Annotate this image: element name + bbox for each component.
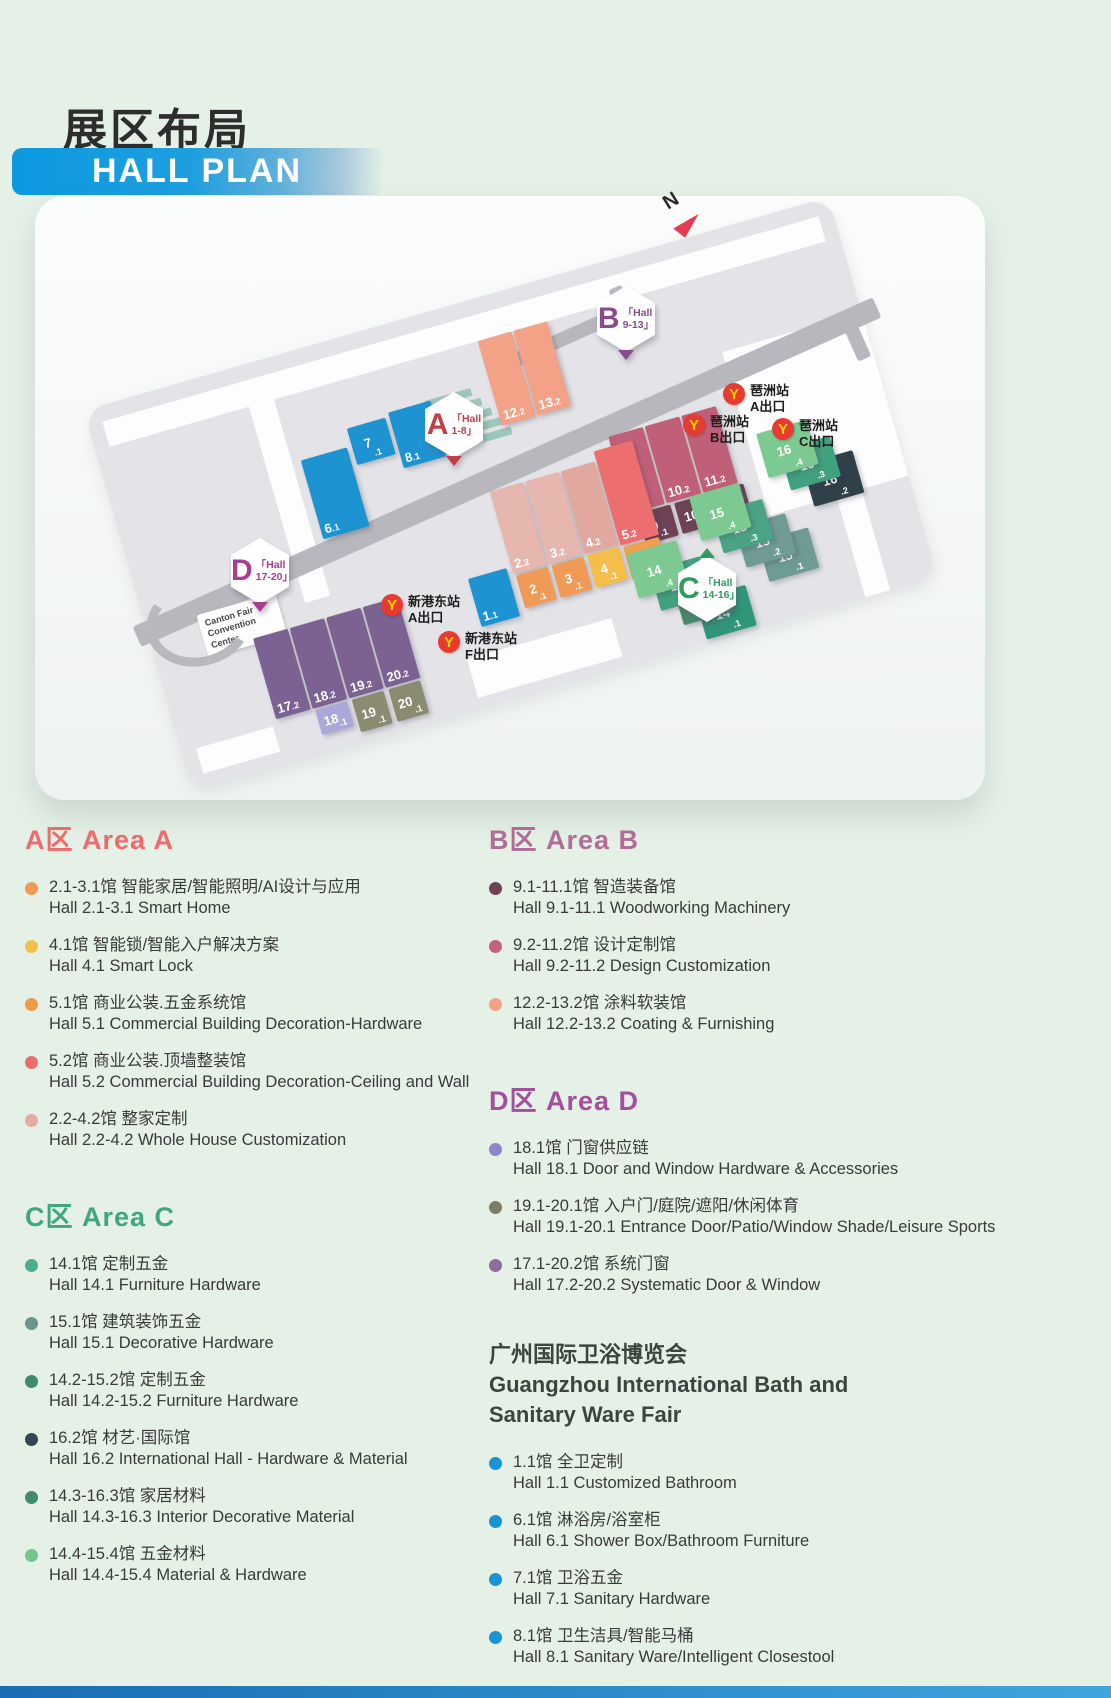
legend-item-cn: 14.1馆 定制五金 bbox=[49, 1254, 261, 1275]
legend-item-en: Hall 16.2 International Hall - Hardware … bbox=[49, 1449, 408, 1470]
legend-item-cn: 14.4-15.4馆 五金材料 bbox=[49, 1544, 307, 1565]
station-name: 新港东站 bbox=[465, 631, 517, 647]
hall-block-3.1: 3.1 bbox=[551, 556, 592, 598]
map-ground: Canton FairConventionCenter 12.213.29.21… bbox=[84, 197, 938, 790]
legend-item-en: Hall 15.1 Decorative Hardware bbox=[49, 1333, 274, 1354]
area-hexagon: D 「Hall 17-20」 bbox=[231, 538, 289, 604]
legend-item-area-c-6: 14.4-15.4馆 五金材料 Hall 14.4-15.4 Material … bbox=[25, 1544, 485, 1586]
bath-fair-title-cn: 广州国际卫浴博览会 bbox=[489, 1340, 1104, 1370]
area-pointer-icon bbox=[446, 456, 462, 466]
legend-item-en: Hall 8.1 Sanitary Ware/Intelligent Close… bbox=[513, 1647, 834, 1668]
legend-section-title: C区 Area C bbox=[25, 1195, 485, 1234]
area-hall-line1: 「Hall bbox=[256, 559, 289, 571]
area-hexagon: C 「Hall 14-16」 bbox=[678, 556, 736, 622]
legend-section-area-c: C区 Area C 14.1馆 定制五金 Hall 14.1 Furniture… bbox=[25, 1195, 485, 1586]
area-hexagon: A 「Hall 1-8」 bbox=[425, 392, 483, 458]
legend-item-area-c-5: 14.3-16.3馆 家居材料 Hall 14.3-16.3 Interior … bbox=[25, 1486, 485, 1528]
legend-left-column: A区 Area A 2.1-3.1馆 智能家居/智能照明/AI设计与应用 Hal… bbox=[25, 818, 485, 1630]
bath-fair-title: 广州国际卫浴博览会Guangzhou International Bath an… bbox=[489, 1340, 1104, 1430]
area-letter: A bbox=[427, 410, 449, 440]
legend-item-cn: 15.1馆 建筑装饰五金 bbox=[49, 1312, 274, 1333]
legend-dot-icon bbox=[489, 1515, 502, 1528]
compass: N bbox=[664, 190, 695, 236]
metro-logo-icon: Y bbox=[723, 383, 745, 405]
legend-item-cn: 6.1馆 淋浴房/浴室柜 bbox=[513, 1510, 809, 1531]
legend-dot-icon bbox=[489, 1631, 502, 1644]
metro-exit-pazhou-a: Y 琶洲站 A出口 bbox=[723, 383, 789, 416]
legend-item-area-c-3: 14.2-15.2馆 定制五金 Hall 14.2-15.2 Furniture… bbox=[25, 1370, 485, 1412]
station-name: 琶洲站 bbox=[750, 383, 789, 399]
legend-item-en: Hall 12.2-13.2 Coating & Furnishing bbox=[513, 1014, 774, 1035]
hall-block-20.1: 20.1 bbox=[388, 680, 429, 722]
legend-dot-icon bbox=[25, 1491, 38, 1504]
area-pointer-icon bbox=[618, 350, 634, 360]
legend-item-cn: 18.1馆 门窗供应链 bbox=[513, 1138, 898, 1159]
legend-item-en: Hall 14.4-15.4 Material & Hardware bbox=[49, 1565, 307, 1586]
legend-item-area-d-1: 18.1馆 门窗供应链 Hall 18.1 Door and Window Ha… bbox=[489, 1138, 1104, 1180]
bath-fair-title-en: Sanitary Ware Fair bbox=[489, 1400, 1104, 1430]
hall-block-1.1: 1.1 bbox=[468, 568, 520, 627]
legend-item-en: Hall 5.2 Commercial Building Decoration-… bbox=[49, 1072, 469, 1093]
legend-item-bath-3: 7.1馆 卫浴五金 Hall 7.1 Sanitary Hardware bbox=[489, 1568, 1104, 1610]
metro-exit-xingang-a: Y 新港东站 A出口 bbox=[381, 594, 460, 627]
legend-dot-icon bbox=[489, 998, 502, 1011]
legend-item-cn: 8.1馆 卫生洁具/智能马桶 bbox=[513, 1626, 834, 1647]
area-hall-line2: 14-16」 bbox=[703, 589, 736, 601]
legend-item-area-c-2: 15.1馆 建筑装饰五金 Hall 15.1 Decorative Hardwa… bbox=[25, 1312, 485, 1354]
legend-item-area-a-1: 2.1-3.1馆 智能家居/智能照明/AI设计与应用 Hall 2.1-3.1 … bbox=[25, 877, 485, 919]
area-label-A: A 「Hall 1-8」 bbox=[425, 392, 483, 458]
metro-logo-icon: Y bbox=[381, 594, 403, 616]
legend-item-en: Hall 1.1 Customized Bathroom bbox=[513, 1473, 737, 1494]
legend-item-cn: 2.1-3.1馆 智能家居/智能照明/AI设计与应用 bbox=[49, 877, 361, 898]
station-exit: A出口 bbox=[750, 399, 789, 415]
area-label-D: D 「Hall 17-20」 bbox=[231, 538, 289, 604]
area-hall-line2: 9-13」 bbox=[623, 319, 655, 331]
legend-dot-icon bbox=[25, 1056, 38, 1069]
area-pointer-icon bbox=[252, 602, 268, 612]
legend-dot-icon bbox=[489, 1573, 502, 1586]
legend-item-cn: 2.2-4.2馆 整家定制 bbox=[49, 1109, 346, 1130]
area-label-B: B 「Hall 9-13」 bbox=[597, 286, 655, 352]
legend-item-en: Hall 14.2-15.2 Furniture Hardware bbox=[49, 1391, 298, 1412]
legend-dot-icon bbox=[25, 1114, 38, 1127]
bath-fair-title-en: Guangzhou International Bath and bbox=[489, 1370, 1104, 1400]
area-letter: B bbox=[598, 304, 620, 334]
legend-item-bath-4: 8.1馆 卫生洁具/智能马桶 Hall 8.1 Sanitary Ware/In… bbox=[489, 1626, 1104, 1668]
area-hexagon: B 「Hall 9-13」 bbox=[597, 286, 655, 352]
page-title-english: HALL PLAN bbox=[12, 148, 384, 195]
road bbox=[196, 726, 280, 773]
legend-item-area-a-2: 4.1馆 智能锁/智能入户解决方案 Hall 4.1 Smart Lock bbox=[25, 935, 485, 977]
legend-dot-icon bbox=[25, 998, 38, 1011]
legend-dot-icon bbox=[489, 1143, 502, 1156]
legend-item-en: Hall 5.1 Commercial Building Decoration-… bbox=[49, 1014, 422, 1035]
hall-plan-page: 展区布局 HALL PLAN Canton FairConventionCent… bbox=[0, 0, 1111, 1698]
legend-item-cn: 16.2馆 材艺·国际馆 bbox=[49, 1428, 408, 1449]
legend-item-en: Hall 9.1-11.1 Woodworking Machinery bbox=[513, 898, 790, 919]
legend-item-cn: 1.1馆 全卫定制 bbox=[513, 1452, 737, 1473]
station-exit: B出口 bbox=[710, 430, 749, 446]
legend-item-cn: 5.1馆 商业公装.五金系统馆 bbox=[49, 993, 422, 1014]
area-letter: C bbox=[678, 574, 700, 604]
legend-item-cn: 14.2-15.2馆 定制五金 bbox=[49, 1370, 298, 1391]
area-label-C: C 「Hall 14-16」 bbox=[678, 556, 736, 622]
legend-item-cn: 12.2-13.2馆 涂料软装馆 bbox=[513, 993, 774, 1014]
hall-block-2.1: 2.1 bbox=[516, 567, 557, 609]
legend-item-cn: 14.3-16.3馆 家居材料 bbox=[49, 1486, 354, 1507]
area-hall-line2: 17-20」 bbox=[256, 571, 289, 583]
legend-section-title: A区 Area A bbox=[25, 818, 485, 857]
legend-section-title: D区 Area D bbox=[489, 1079, 1104, 1118]
legend-item-cn: 5.2馆 商业公装.顶墙整装馆 bbox=[49, 1051, 469, 1072]
metro-exit-pazhou-b: Y 琶洲站 B出口 bbox=[683, 414, 749, 447]
legend-section-area-b: B区 Area B 9.1-11.1馆 智造装备馆 Hall 9.1-11.1 … bbox=[489, 818, 1104, 1035]
legend-item-bath-1: 1.1馆 全卫定制 Hall 1.1 Customized Bathroom bbox=[489, 1452, 1104, 1494]
legend-section-bath: 广州国际卫浴博览会Guangzhou International Bath an… bbox=[489, 1340, 1104, 1668]
legend-item-en: Hall 19.1-20.1 Entrance Door/Patio/Windo… bbox=[513, 1217, 995, 1238]
legend-item-cn: 7.1馆 卫浴五金 bbox=[513, 1568, 710, 1589]
legend-item-area-c-1: 14.1馆 定制五金 Hall 14.1 Furniture Hardware bbox=[25, 1254, 485, 1296]
legend-dot-icon bbox=[489, 882, 502, 895]
legend-dot-icon bbox=[489, 1201, 502, 1214]
metro-logo-icon: Y bbox=[438, 631, 460, 653]
legend-dot-icon bbox=[25, 1433, 38, 1446]
metro-exit-pazhou-c: Y 琶洲站 C出口 bbox=[772, 418, 838, 451]
legend-item-en: Hall 2.1-3.1 Smart Home bbox=[49, 898, 361, 919]
metro-exit-xingang-f: Y 新港东站 F出口 bbox=[438, 631, 517, 664]
legend-item-area-d-3: 17.1-20.2馆 系统门窗 Hall 17.2-20.2 Systemati… bbox=[489, 1254, 1104, 1296]
area-hall-line1: 「Hall bbox=[451, 413, 481, 425]
area-letter: D bbox=[231, 556, 253, 586]
legend-dot-icon bbox=[489, 1259, 502, 1272]
legend-right-column: B区 Area B 9.1-11.1馆 智造装备馆 Hall 9.1-11.1 … bbox=[489, 818, 1104, 1698]
hall-block-7.1: 7.1 bbox=[347, 418, 396, 466]
legend-item-en: Hall 14.3-16.3 Interior Decorative Mater… bbox=[49, 1507, 354, 1528]
legend-item-area-d-2: 19.1-20.1馆 入户门/庭院/遮阳/休闲体育 Hall 19.1-20.1… bbox=[489, 1196, 1104, 1238]
legend-dot-icon bbox=[25, 1259, 38, 1272]
legend-section-title: B区 Area B bbox=[489, 818, 1104, 857]
legend-section-area-d: D区 Area D 18.1馆 门窗供应链 Hall 18.1 Door and… bbox=[489, 1079, 1104, 1296]
legend-item-area-b-2: 9.2-11.2馆 设计定制馆 Hall 9.2-11.2 Design Cus… bbox=[489, 935, 1104, 977]
legend-dot-icon bbox=[25, 940, 38, 953]
station-name: 琶洲站 bbox=[799, 418, 838, 434]
legend-item-bath-2: 6.1馆 淋浴房/浴室柜 Hall 6.1 Shower Box/Bathroo… bbox=[489, 1510, 1104, 1552]
station-exit: A出口 bbox=[408, 610, 460, 626]
legend-item-cn: 9.1-11.1馆 智造装备馆 bbox=[513, 877, 790, 898]
hall-plan-banner: HALL PLAN bbox=[12, 148, 384, 195]
footer-bar bbox=[0, 1686, 1111, 1698]
legend-dot-icon bbox=[25, 1375, 38, 1388]
legend-dot-icon bbox=[25, 1317, 38, 1330]
legend-item-cn: 17.1-20.2馆 系统门窗 bbox=[513, 1254, 820, 1275]
map-card: Canton FairConventionCenter 12.213.29.21… bbox=[35, 196, 985, 800]
legend-item-en: Hall 9.2-11.2 Design Customization bbox=[513, 956, 770, 977]
legend-item-en: Hall 7.1 Sanitary Hardware bbox=[513, 1589, 710, 1610]
metro-logo-icon: Y bbox=[772, 418, 794, 440]
legend-item-area-c-4: 16.2馆 材艺·国际馆 Hall 16.2 International Hal… bbox=[25, 1428, 485, 1470]
area-hall-line2: 1-8」 bbox=[451, 425, 481, 437]
station-exit: C出口 bbox=[799, 434, 838, 450]
legend-item-cn: 19.1-20.1馆 入户门/庭院/遮阳/休闲体育 bbox=[513, 1196, 995, 1217]
legend-item-cn: 9.2-11.2馆 设计定制馆 bbox=[513, 935, 770, 956]
legend-item-area-a-5: 2.2-4.2馆 整家定制 Hall 2.2-4.2 Whole House C… bbox=[25, 1109, 485, 1151]
metro-logo-icon: Y bbox=[683, 414, 705, 436]
legend-item-area-a-3: 5.1馆 商业公装.五金系统馆 Hall 5.1 Commercial Buil… bbox=[25, 993, 485, 1035]
area-hall-line1: 「Hall bbox=[703, 577, 736, 589]
legend-dot-icon bbox=[489, 1457, 502, 1470]
area-hall-line1: 「Hall bbox=[623, 307, 655, 319]
legend-item-en: Hall 18.1 Door and Window Hardware & Acc… bbox=[513, 1159, 898, 1180]
station-exit: F出口 bbox=[465, 647, 517, 663]
legend-dot-icon bbox=[25, 1549, 38, 1562]
legend-item-en: Hall 17.2-20.2 Systematic Door & Window bbox=[513, 1275, 820, 1296]
legend-item-area-b-1: 9.1-11.1馆 智造装备馆 Hall 9.1-11.1 Woodworkin… bbox=[489, 877, 1104, 919]
hall-block-19.1: 19.1 bbox=[352, 691, 393, 733]
legend-item-area-b-3: 12.2-13.2馆 涂料软装馆 Hall 12.2-13.2 Coating … bbox=[489, 993, 1104, 1035]
legend-item-en: Hall 14.1 Furniture Hardware bbox=[49, 1275, 261, 1296]
legend-item-en: Hall 6.1 Shower Box/Bathroom Furniture bbox=[513, 1531, 809, 1552]
station-name: 新港东站 bbox=[408, 594, 460, 610]
hall-block-4.1: 4.1 bbox=[587, 546, 628, 588]
legend-dot-icon bbox=[25, 882, 38, 895]
area-pointer-icon bbox=[699, 548, 715, 558]
legend-item-cn: 4.1馆 智能锁/智能入户解决方案 bbox=[49, 935, 279, 956]
legend-item-en: Hall 4.1 Smart Lock bbox=[49, 956, 279, 977]
legend-section-area-a: A区 Area A 2.1-3.1馆 智能家居/智能照明/AI设计与应用 Hal… bbox=[25, 818, 485, 1151]
legend-item-area-a-4: 5.2馆 商业公装.顶墙整装馆 Hall 5.2 Commercial Buil… bbox=[25, 1051, 485, 1093]
legend-dot-icon bbox=[489, 940, 502, 953]
station-name: 琶洲站 bbox=[710, 414, 749, 430]
legend-item-en: Hall 2.2-4.2 Whole House Customization bbox=[49, 1130, 346, 1151]
